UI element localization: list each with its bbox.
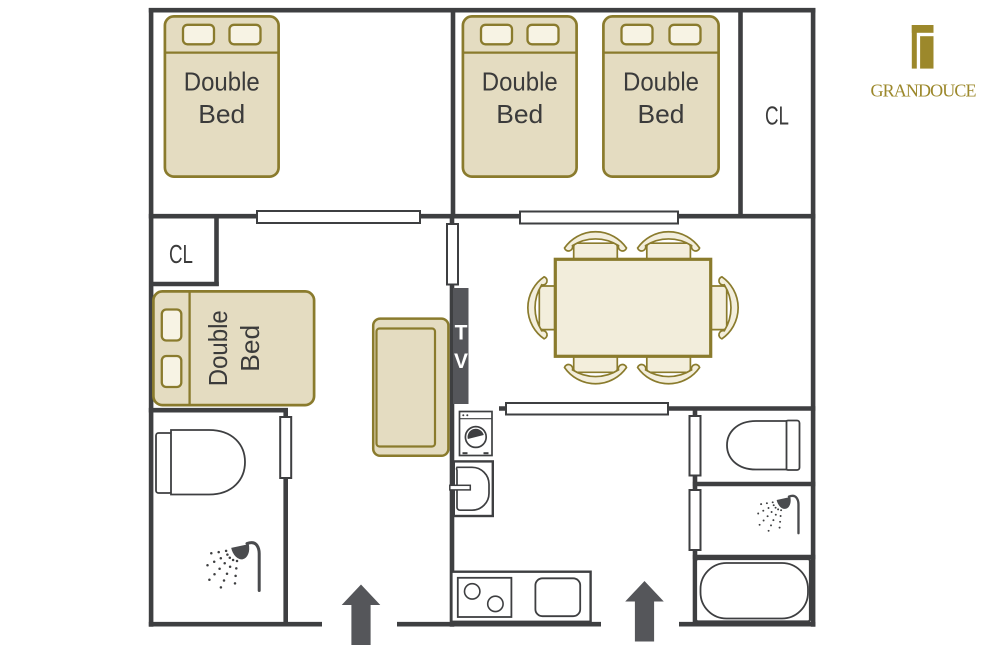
svg-text:T: T	[455, 322, 468, 345]
svg-text:Double: Double	[203, 310, 233, 386]
svg-text:Double: Double	[623, 67, 699, 97]
svg-text:Bed: Bed	[496, 99, 543, 129]
svg-text:Double: Double	[482, 67, 558, 97]
svg-text:V: V	[454, 350, 468, 373]
svg-text:Bed: Bed	[638, 99, 685, 129]
svg-text:Double: Double	[184, 67, 260, 97]
svg-text:CL: CL	[169, 239, 193, 269]
svg-text:GRANDOUCE: GRANDOUCE	[871, 81, 977, 101]
svg-text:Bed: Bed	[235, 325, 265, 372]
svg-text:CL: CL	[765, 101, 789, 131]
svg-text:Bed: Bed	[198, 99, 245, 129]
